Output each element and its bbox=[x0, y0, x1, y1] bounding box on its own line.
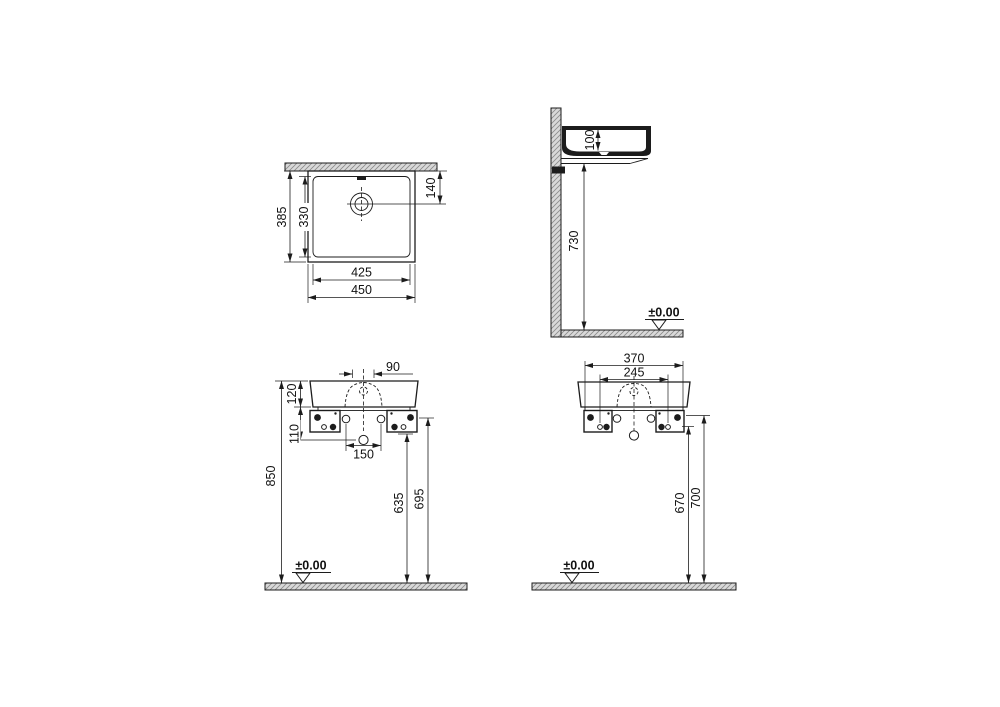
plan-dim-drain-to-wall: 140 bbox=[424, 171, 447, 204]
front-view: 90 120 110 150 850 bbox=[264, 360, 467, 590]
side-dim-height-under-rim-label: 730 bbox=[567, 231, 581, 252]
front-dim-fixing-low: 635 bbox=[392, 434, 413, 583]
rear-view: 370 245 700 670 ±0.00 bbox=[532, 352, 736, 591]
front-floor-datum-label: ±0.00 bbox=[295, 559, 326, 573]
front-left-bracket-dot bbox=[334, 412, 336, 414]
rear-right-bracket-screw bbox=[674, 414, 681, 421]
front-datum-triangle-icon bbox=[296, 573, 310, 583]
side-wall-section bbox=[551, 108, 561, 337]
side-datum-triangle-icon bbox=[652, 320, 666, 330]
rear-left-bracket-hole bbox=[598, 425, 603, 430]
rear-right-bracket-dot bbox=[658, 412, 660, 414]
front-dim-fixing-high: 695 bbox=[413, 418, 435, 583]
front-right-bracket-screw2 bbox=[391, 424, 397, 430]
rear-right-fixing-hole bbox=[647, 415, 655, 423]
front-dim-body-height: 120 bbox=[285, 381, 311, 407]
rear-right-bracket-hole bbox=[666, 425, 671, 430]
front-left-fixing-hole bbox=[342, 415, 350, 423]
side-dim-basin-depth-label: 100 bbox=[583, 130, 597, 151]
front-left-bracket-screw2 bbox=[330, 424, 336, 430]
rear-floor-datum-label: ±0.00 bbox=[563, 559, 594, 573]
side-shelf-edge-line bbox=[630, 159, 648, 164]
rear-dim-fixing-high-label: 700 bbox=[689, 488, 703, 509]
plan-dim-outer-depth-label: 385 bbox=[275, 207, 289, 228]
rear-dim-fixing-hole-span-label: 245 bbox=[624, 366, 645, 380]
plan-dim-inner-width: 425 bbox=[313, 264, 410, 285]
side-wall-anchor bbox=[552, 167, 565, 174]
rear-dim-bracket-span-label: 370 bbox=[624, 352, 645, 366]
front-body bbox=[310, 381, 418, 407]
side-dim-basin-depth: 100 bbox=[583, 130, 598, 151]
front-dim-top-offset: 90 bbox=[339, 360, 413, 378]
front-left-bracket-screw bbox=[314, 414, 321, 421]
front-floor-datum: ±0.00 bbox=[292, 559, 331, 583]
front-right-bracket-screw bbox=[407, 414, 414, 421]
front-dim-overall-height-label: 850 bbox=[264, 466, 278, 487]
rear-drain-hole bbox=[629, 431, 638, 440]
side-floor-datum: ±0.00 bbox=[645, 306, 684, 330]
rear-left-bracket-screw bbox=[587, 414, 594, 421]
front-dim-drain-offset-label: 110 bbox=[288, 424, 302, 444]
plan-dim-drain-to-wall-label: 140 bbox=[424, 178, 438, 199]
rear-datum-triangle-icon bbox=[565, 573, 579, 583]
front-dim-body-height-label: 120 bbox=[285, 384, 299, 405]
rear-dim-fixing-high: 700 bbox=[686, 416, 710, 584]
rear-left-bracket-screw2 bbox=[603, 424, 609, 430]
front-dim-overall-height: 850 bbox=[264, 381, 308, 583]
front-right-bracket-hole bbox=[401, 425, 406, 430]
front-floor-section bbox=[265, 583, 467, 590]
side-view: 100 730 ±0.00 bbox=[551, 108, 684, 337]
front-left-bracket-hole bbox=[322, 425, 327, 430]
rear-left-bracket-dot bbox=[607, 412, 609, 414]
plan-dim-inner-width-label: 425 bbox=[351, 266, 372, 280]
plan-dim-inner-depth-label: 330 bbox=[297, 207, 311, 228]
front-drain-hole bbox=[359, 435, 368, 444]
rear-left-fixing-hole bbox=[613, 415, 621, 423]
front-dim-fixing-low-label: 635 bbox=[392, 493, 406, 514]
side-dim-height-under-rim: 730 bbox=[567, 164, 584, 331]
front-right-fixing-hole bbox=[377, 415, 385, 423]
front-dim-hole-spacing-label: 150 bbox=[353, 448, 374, 462]
side-basin-profile-inner bbox=[566, 130, 646, 152]
side-floor-datum-label: ±0.00 bbox=[648, 306, 679, 320]
side-floor-section bbox=[561, 330, 683, 337]
plan-dim-outer-width-label: 450 bbox=[351, 283, 372, 297]
front-right-bracket-dot bbox=[390, 412, 392, 414]
rear-right-bracket-screw2 bbox=[658, 424, 664, 430]
plan-wall-section bbox=[285, 163, 437, 171]
technical-drawing-page: 385 330 140 425 450 bbox=[0, 0, 1000, 707]
front-dim-top-offset-label: 90 bbox=[386, 360, 400, 374]
plan-overflow-slot bbox=[357, 177, 366, 180]
plan-view: 385 330 140 425 450 bbox=[275, 163, 447, 303]
rear-floor-datum: ±0.00 bbox=[560, 559, 599, 583]
rear-floor-section bbox=[532, 583, 736, 590]
washbasin-dimension-drawing: 385 330 140 425 450 bbox=[0, 0, 1000, 707]
front-dim-fixing-high-label: 695 bbox=[413, 489, 427, 510]
rear-dim-fixing-low-label: 670 bbox=[673, 493, 687, 514]
